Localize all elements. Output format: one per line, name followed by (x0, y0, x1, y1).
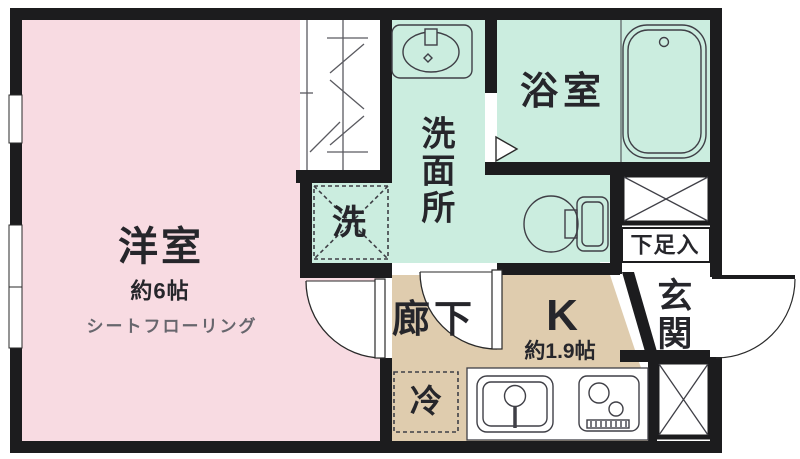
room-size-kitchen: 約1.9帖 (524, 341, 595, 363)
room-label-hallway: 廊下 (392, 301, 476, 341)
room-label-bathroom: 浴室 (520, 73, 606, 113)
shoe-storage-label: 下足入 (630, 233, 699, 256)
room-flooring-western: シートフローリング (87, 318, 258, 336)
washing-machine-label: 洗 (332, 206, 366, 242)
refrigerator-label: 冷 (410, 385, 442, 419)
floor-plan: 洋室 約6帖 シートフローリング 洗面所 浴室 洗 廊下 K 約1.9帖 玄関 … (0, 0, 800, 459)
room-label-washroom: 洗面所 (416, 116, 452, 227)
room-size-western: 約6帖 (130, 279, 189, 302)
room-label-kitchen: K (546, 293, 578, 339)
room-label-western: 洋室 (118, 226, 204, 268)
pipe-space-icon (622, 175, 710, 223)
closet-icon (300, 20, 380, 170)
pipe-space-icon-2 (657, 362, 710, 437)
room-label-entrance: 玄関 (653, 277, 690, 353)
